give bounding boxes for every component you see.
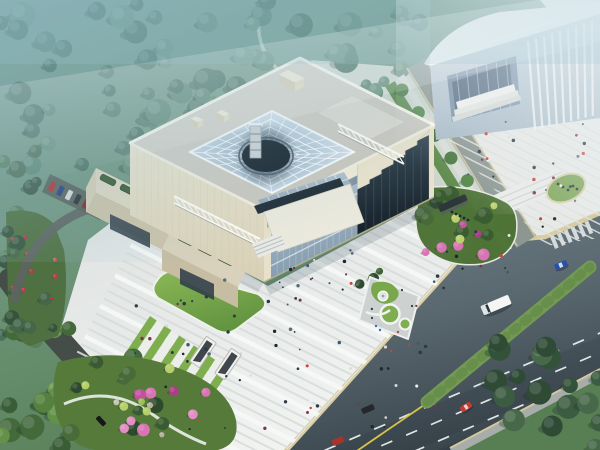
person (434, 405, 437, 408)
person (279, 281, 281, 283)
person (508, 234, 511, 237)
person (176, 303, 179, 306)
person (294, 331, 296, 333)
person (224, 427, 226, 429)
person (263, 427, 266, 430)
person (553, 217, 556, 220)
person (446, 250, 449, 253)
person (203, 417, 205, 419)
person (455, 255, 458, 258)
person (309, 399, 313, 403)
person (371, 425, 374, 428)
person (134, 352, 136, 354)
person (148, 337, 151, 340)
person (180, 299, 182, 301)
person (539, 217, 542, 220)
person (349, 367, 352, 370)
person (182, 302, 186, 306)
person (287, 304, 289, 306)
person (306, 411, 309, 414)
person (436, 274, 439, 277)
person (417, 342, 420, 345)
person (415, 305, 417, 307)
person (506, 271, 509, 274)
person (418, 351, 422, 355)
person (198, 420, 200, 422)
person (239, 379, 241, 381)
person (205, 295, 208, 298)
person (316, 404, 319, 407)
person (135, 304, 138, 307)
person (461, 267, 463, 269)
person (274, 344, 277, 347)
person (299, 349, 301, 351)
person (223, 278, 226, 281)
person (408, 344, 410, 346)
person (294, 297, 297, 300)
person (297, 367, 300, 370)
person (395, 384, 398, 387)
person (284, 400, 287, 403)
person (140, 337, 143, 340)
person (474, 230, 477, 233)
person (424, 345, 427, 348)
person (207, 352, 211, 356)
person (461, 280, 464, 283)
person (371, 308, 373, 310)
person (345, 273, 347, 275)
person (504, 267, 506, 269)
person (186, 360, 189, 363)
person (165, 324, 168, 327)
person (296, 284, 299, 287)
person (356, 283, 359, 286)
person (421, 281, 423, 283)
person (479, 265, 482, 268)
person (338, 341, 341, 344)
person (342, 288, 344, 290)
person (164, 386, 167, 389)
person (306, 364, 309, 367)
person (350, 282, 353, 285)
person (171, 351, 174, 354)
person (191, 300, 193, 302)
person (384, 416, 387, 419)
person (384, 345, 387, 348)
person (225, 375, 227, 377)
person (442, 286, 445, 289)
person (309, 407, 311, 409)
person (499, 254, 502, 257)
person (437, 240, 439, 242)
person (240, 352, 242, 354)
person (233, 314, 236, 317)
person (306, 264, 309, 267)
person (415, 384, 418, 387)
architectural-rendering (0, 0, 600, 450)
person (328, 282, 330, 284)
person (273, 330, 276, 333)
person (189, 428, 191, 430)
person (357, 403, 359, 405)
person (282, 286, 284, 288)
person (226, 330, 229, 333)
person (387, 367, 390, 370)
person (186, 343, 189, 346)
person (380, 367, 383, 370)
person (289, 327, 293, 331)
person (267, 300, 270, 303)
rendering-canvas (0, 0, 600, 450)
person (390, 350, 392, 352)
person (289, 268, 292, 271)
person (204, 347, 207, 350)
person (433, 280, 436, 283)
person (383, 426, 385, 428)
person (299, 299, 302, 302)
person (350, 285, 352, 287)
person (182, 353, 185, 356)
person (293, 267, 295, 269)
person (311, 277, 313, 279)
person (542, 225, 544, 227)
person (250, 374, 252, 376)
